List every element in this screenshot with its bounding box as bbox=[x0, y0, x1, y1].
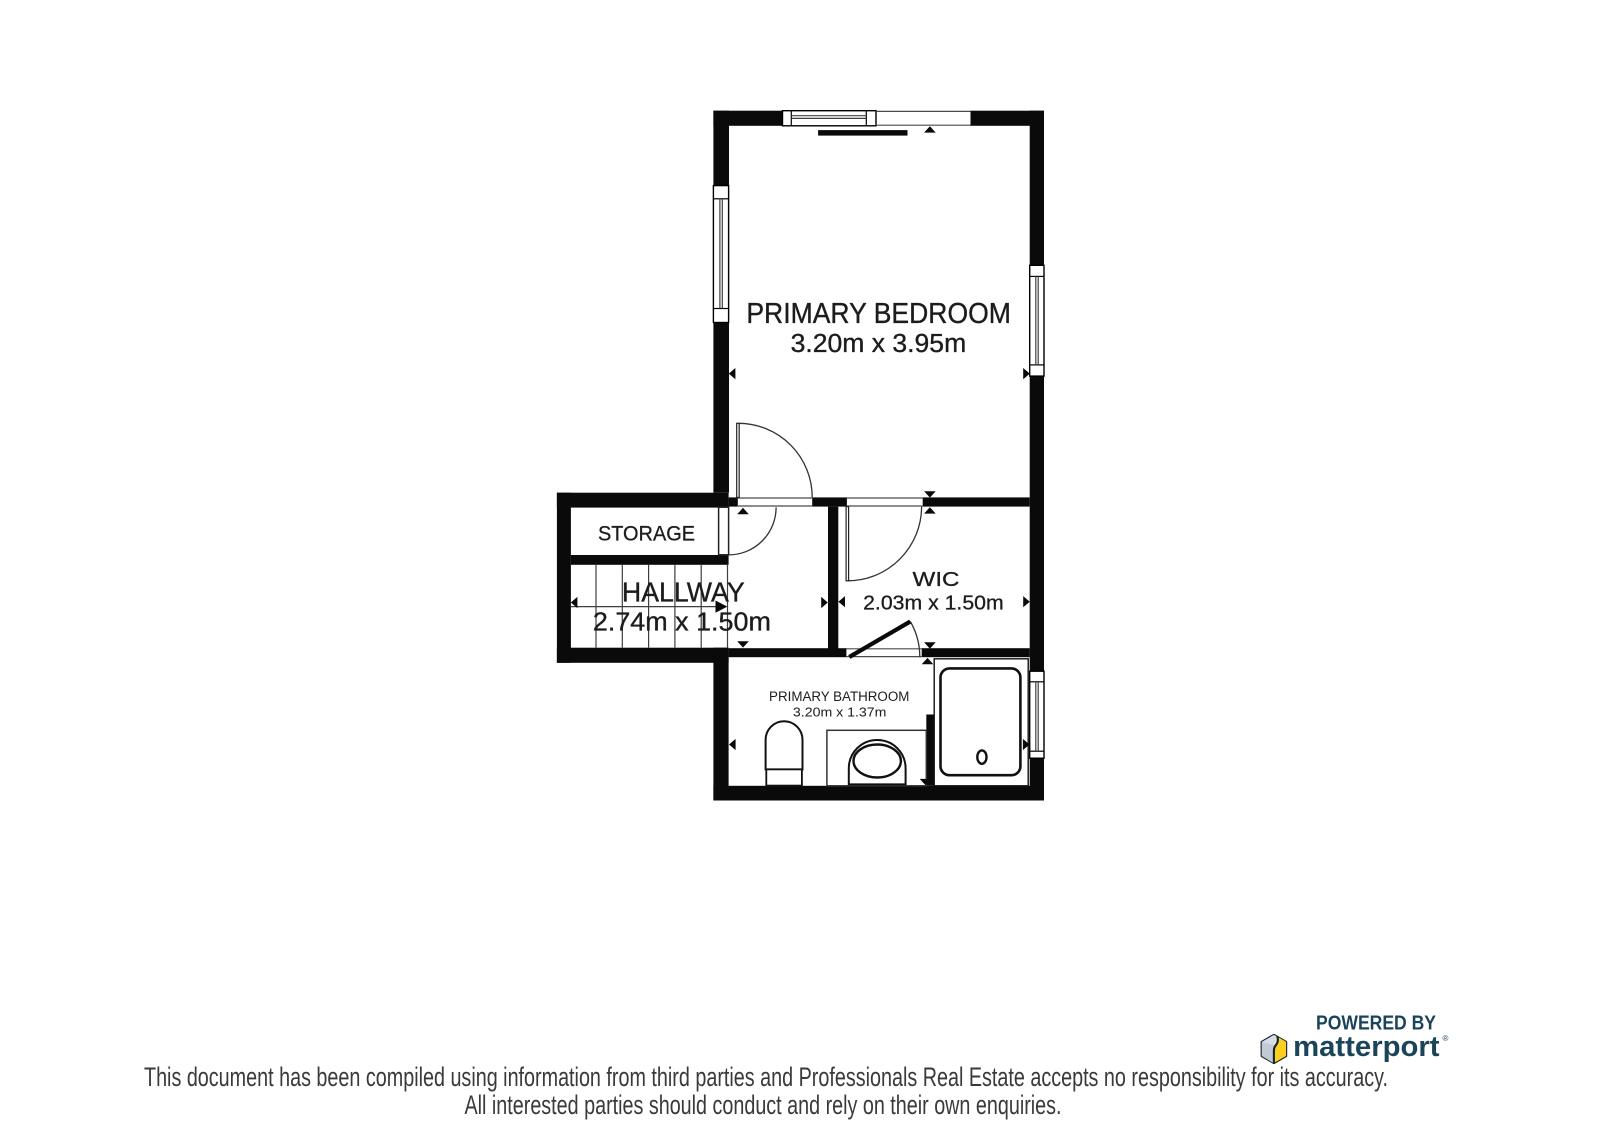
svg-text:This document has been compile: This document has been compiled using in… bbox=[144, 1062, 1388, 1092]
svg-text:matterport: matterport bbox=[1293, 1031, 1440, 1063]
svg-text:®: ® bbox=[1443, 1034, 1449, 1043]
svg-text:HALLWAY: HALLWAY bbox=[622, 577, 745, 608]
svg-text:3.20m x 1.37m: 3.20m x 1.37m bbox=[793, 704, 887, 719]
svg-text:STORAGE: STORAGE bbox=[598, 521, 695, 545]
svg-text:All interested parties should: All interested parties should conduct an… bbox=[465, 1090, 1062, 1120]
svg-text:PRIMARY BEDROOM: PRIMARY BEDROOM bbox=[746, 298, 1011, 330]
svg-text:PRIMARY BATHROOM: PRIMARY BATHROOM bbox=[769, 689, 909, 704]
svg-text:WIC: WIC bbox=[913, 568, 960, 591]
svg-text:2.74m x 1.50m: 2.74m x 1.50m bbox=[593, 609, 771, 637]
svg-text:3.20m x 3.95m: 3.20m x 3.95m bbox=[791, 330, 967, 358]
svg-text:2.03m x 1.50m: 2.03m x 1.50m bbox=[863, 592, 1004, 614]
